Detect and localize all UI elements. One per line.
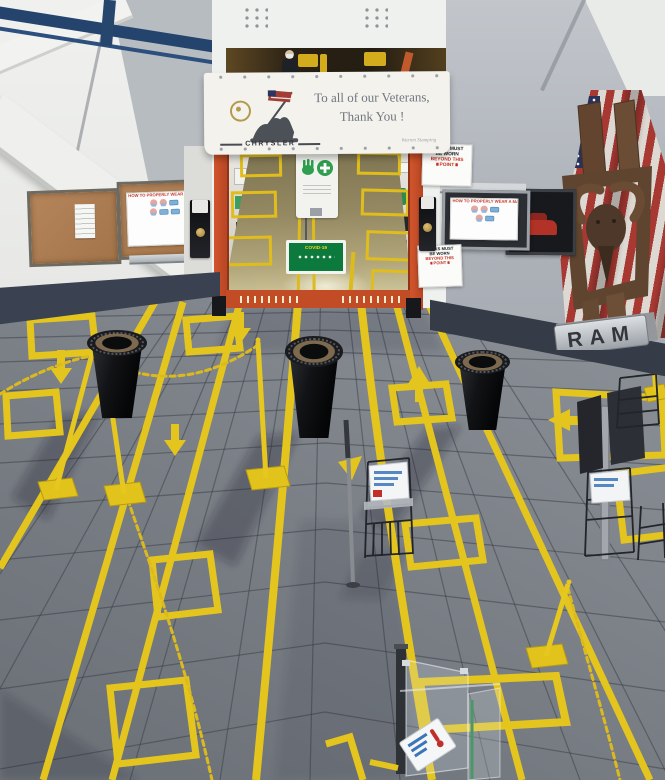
mask-icon: [490, 207, 499, 213]
chrysler-wordmark: CHRYSLER: [245, 140, 295, 147]
header-bolts: [362, 6, 388, 28]
veterans-banner: To all of our Veterans, Thank You ! CHRY…: [204, 71, 451, 155]
framed-mask-poster: HOW TO PROPERLY WEAR A MASK: [442, 189, 531, 250]
display-panel: [577, 395, 603, 474]
hand-wash-icon: [300, 158, 334, 178]
masked-face-icon: [150, 199, 157, 206]
ramp-rect: [231, 191, 277, 219]
ramp-rect: [361, 188, 410, 216]
wing-line-icon: [220, 143, 242, 145]
station-base: [310, 208, 322, 216]
mask-sign-line: POINT: [440, 162, 455, 168]
covid-sign-text: COVID-19: [300, 245, 332, 250]
ramp-rect: [357, 152, 401, 176]
banner-signature: Warren Stamping: [401, 138, 436, 143]
mask-poster: HOW TO PROPERLY WEAR A MASK: [450, 197, 519, 240]
masked-face-icon: [481, 206, 488, 213]
red-figure-icon: [455, 163, 457, 166]
mask-icon: [485, 215, 494, 221]
frame-base: [212, 296, 226, 316]
ramp-rect: [240, 154, 282, 178]
frame-base: [406, 298, 421, 318]
entrance-threshold-band: [226, 290, 410, 308]
masked-face-icon: [476, 214, 483, 221]
us-flag-icon: [268, 90, 292, 102]
mask-sign-line: POINT: [433, 260, 446, 265]
wing-line-icon: [298, 143, 320, 145]
red-figure-icon: [430, 262, 432, 265]
grille-post: [614, 100, 640, 176]
trash-can: [284, 336, 344, 438]
header-bolts: [242, 6, 268, 28]
iwo-jima-memorial-icon: [248, 88, 304, 144]
trash-can: [454, 350, 511, 430]
sanitizer-station: [296, 150, 338, 218]
railing-post: [100, 0, 116, 46]
hand-sanitizer-dispenser: [190, 200, 210, 258]
grille-post: [578, 102, 606, 180]
covid-floor-sign: COVID-19: [286, 240, 346, 274]
red-figure-icon: [436, 163, 438, 166]
banner-line2: Thank You !: [302, 108, 442, 125]
hand-sanitizer-dispenser: [419, 197, 436, 251]
trash-can-rim: [87, 330, 147, 356]
trash-can-rim: [285, 336, 343, 367]
chrysler-logo: CHRYSLER: [220, 140, 320, 148]
covid-sign-icons: [297, 255, 335, 259]
station-text: [303, 182, 331, 194]
mask-icon: [171, 208, 180, 214]
banner-line1: To all of our Veterans,: [302, 89, 442, 106]
cork-board: [27, 188, 122, 267]
masked-face-icon: [471, 205, 478, 212]
mask-icon: [169, 199, 178, 205]
board-tray: [129, 254, 191, 265]
masked-face-icon: [150, 208, 157, 215]
trash-can: [86, 330, 148, 418]
face-mask: [286, 54, 293, 58]
posted-notice: [75, 204, 96, 238]
wall-tape-rect: [364, 52, 386, 66]
trash-can-rim: [455, 350, 510, 374]
threshold-text: [240, 296, 298, 303]
mask-icon: [159, 209, 168, 215]
corner-shadow: [540, 0, 587, 91]
white-wall-corner: [585, 0, 665, 96]
threshold-text: [342, 296, 400, 303]
masked-face-icon: [160, 199, 167, 206]
ram-sign: RAM: [554, 315, 649, 350]
red-figure-icon: [447, 261, 449, 264]
factory-lobby-photo: HOW TO PROPERLY WEAR A MASK: [0, 0, 665, 780]
mask-poster-title: HOW TO PROPERLY WEAR A MASK: [452, 199, 518, 204]
wall-tape-rect: [298, 54, 318, 67]
